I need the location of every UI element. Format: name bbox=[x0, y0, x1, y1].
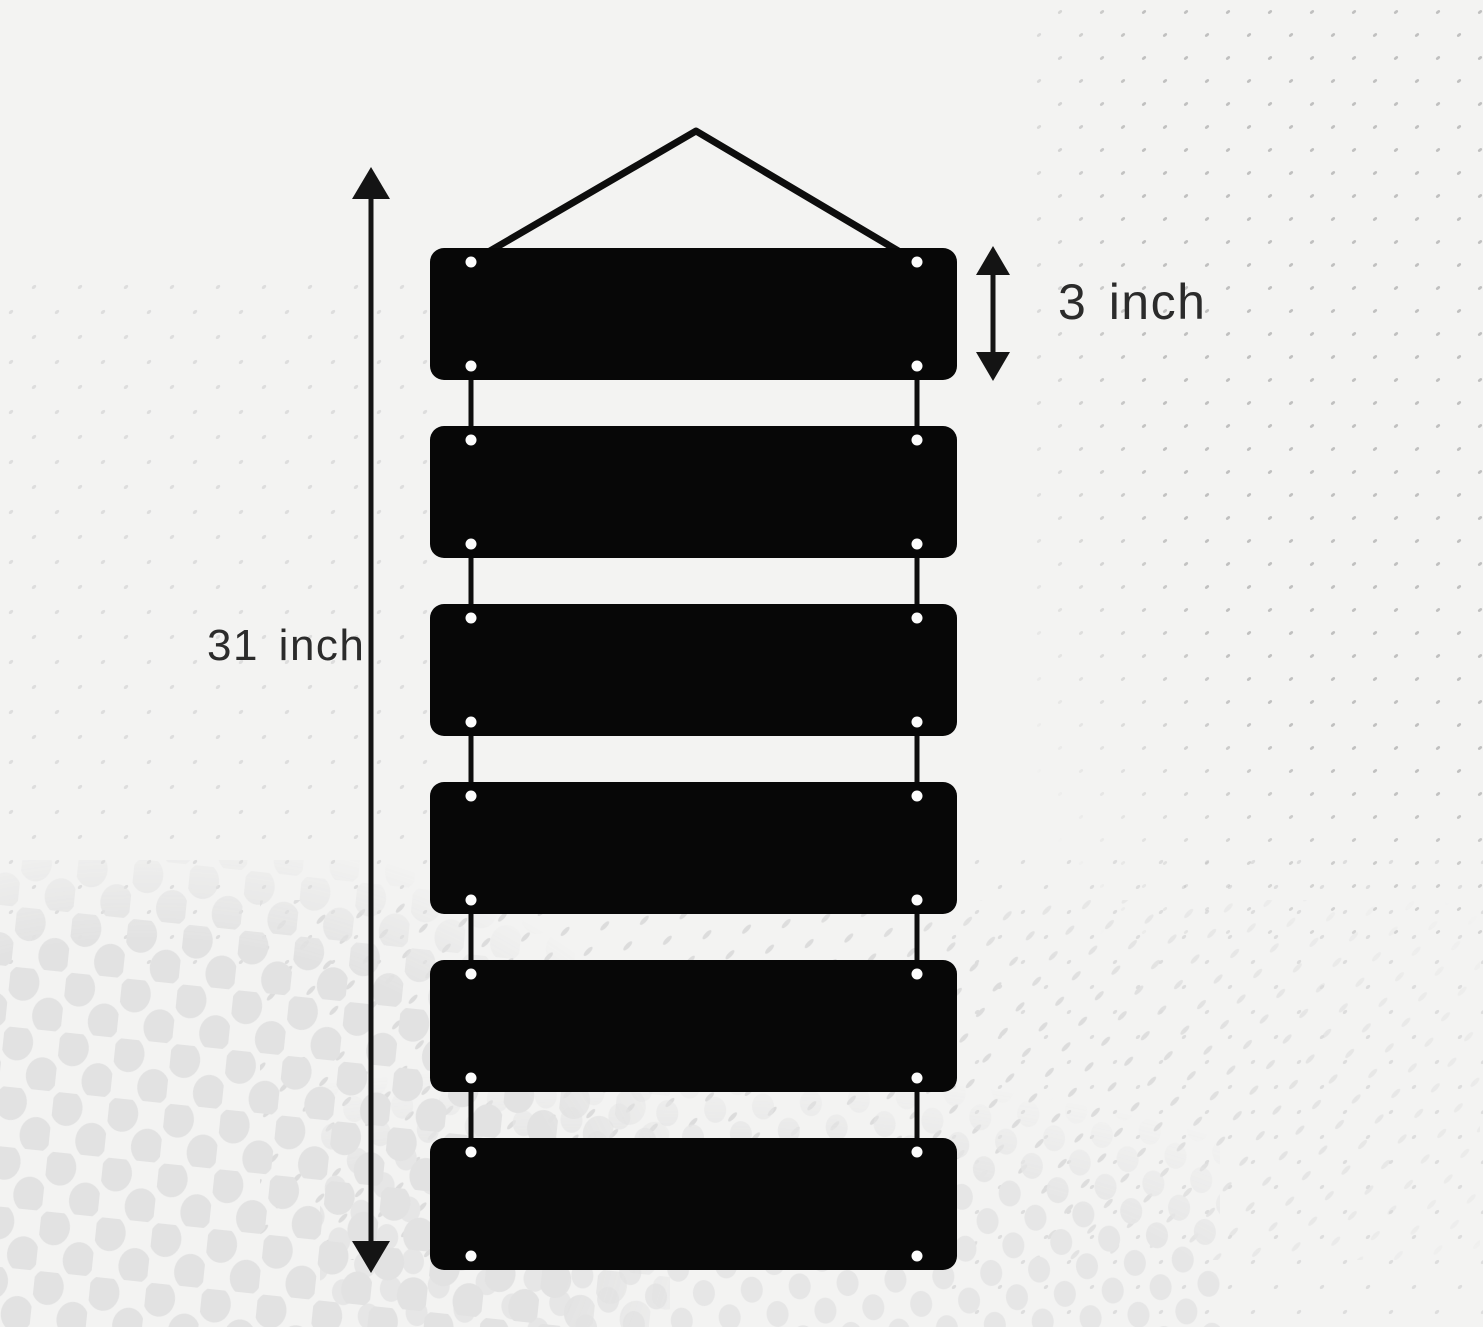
speck-field-top-right bbox=[1030, 0, 1483, 950]
plank-hole bbox=[466, 1147, 477, 1158]
plank-4 bbox=[430, 782, 957, 914]
plank-3 bbox=[430, 604, 957, 736]
plank-hole bbox=[912, 1147, 923, 1158]
total-height-label: 31 inch bbox=[207, 624, 365, 668]
plank-5 bbox=[430, 960, 957, 1092]
plank-hole bbox=[466, 257, 477, 268]
plank-hole bbox=[466, 969, 477, 980]
plank-hole bbox=[466, 717, 477, 728]
plank-hole bbox=[912, 613, 923, 624]
plank-hole bbox=[912, 435, 923, 446]
plank-hole bbox=[466, 791, 477, 802]
plank-hole bbox=[912, 1251, 923, 1262]
plank-hole bbox=[466, 1251, 477, 1262]
plank-hole bbox=[912, 895, 923, 906]
plank-hole bbox=[466, 1073, 477, 1084]
plank-hole bbox=[912, 717, 923, 728]
plank-6 bbox=[430, 1138, 957, 1270]
plank-hole bbox=[466, 435, 477, 446]
plank-hole bbox=[466, 613, 477, 624]
plank-height-label: 3 inch bbox=[1058, 277, 1206, 327]
plank-hole bbox=[912, 791, 923, 802]
plank-hole bbox=[912, 257, 923, 268]
plank-1 bbox=[430, 248, 957, 380]
plank-hole bbox=[466, 361, 477, 372]
plank-hole bbox=[912, 539, 923, 550]
plank-hole bbox=[912, 1073, 923, 1084]
plank-2 bbox=[430, 426, 957, 558]
plank-hole bbox=[466, 895, 477, 906]
plank-hole bbox=[912, 969, 923, 980]
plank-hole bbox=[912, 361, 923, 372]
plank-hole bbox=[466, 539, 477, 550]
product-dimension-diagram: 31 inch 3 inch bbox=[0, 0, 1483, 1327]
